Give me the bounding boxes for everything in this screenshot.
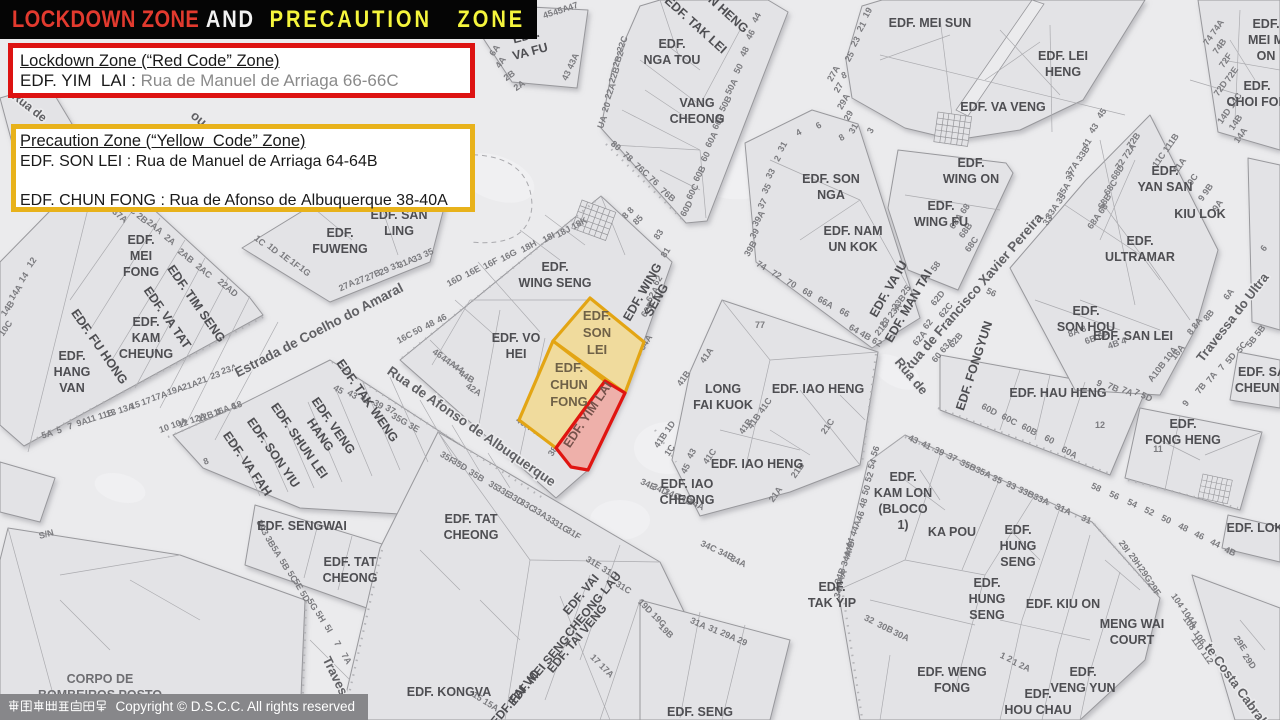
svg-text:77: 77 bbox=[755, 320, 765, 330]
svg-text:EDF.HUNGSENG: EDF.HUNGSENG bbox=[969, 576, 1006, 622]
svg-text:EDF. LOK: EDF. LOK bbox=[1227, 521, 1280, 535]
svg-text:EDF. KIU ON: EDF. KIU ON bbox=[1026, 597, 1100, 611]
svg-text:12: 12 bbox=[1095, 420, 1105, 430]
svg-text:EDF.CHUNFONG: EDF.CHUNFONG bbox=[550, 360, 588, 409]
svg-text:EDF. MEI SUN: EDF. MEI SUN bbox=[889, 16, 972, 30]
svg-text:EDF.SONLEI: EDF.SONLEI bbox=[583, 308, 611, 357]
svg-text:KIU LOK: KIU LOK bbox=[1174, 207, 1225, 221]
svg-text:EDF. IAO HENG: EDF. IAO HENG bbox=[772, 382, 864, 396]
svg-text:EDF. SENG: EDF. SENG bbox=[667, 705, 733, 719]
svg-text:EDF. SENGWAI: EDF. SENGWAI bbox=[257, 519, 347, 533]
svg-text:EDF. VA VENG: EDF. VA VENG bbox=[960, 100, 1045, 114]
svg-text:EDF. HAU HENG: EDF. HAU HENG bbox=[1009, 386, 1106, 400]
svg-text:EDF.HUNGSENG: EDF.HUNGSENG bbox=[1000, 523, 1037, 569]
svg-text:EDF. IAO HENG: EDF. IAO HENG bbox=[711, 457, 803, 471]
svg-text:EDF. KONGVA: EDF. KONGVA bbox=[407, 685, 492, 699]
svg-text:KA POU: KA POU bbox=[928, 525, 976, 539]
svg-text:EDF. SAN LEI: EDF. SAN LEI bbox=[1093, 329, 1173, 343]
